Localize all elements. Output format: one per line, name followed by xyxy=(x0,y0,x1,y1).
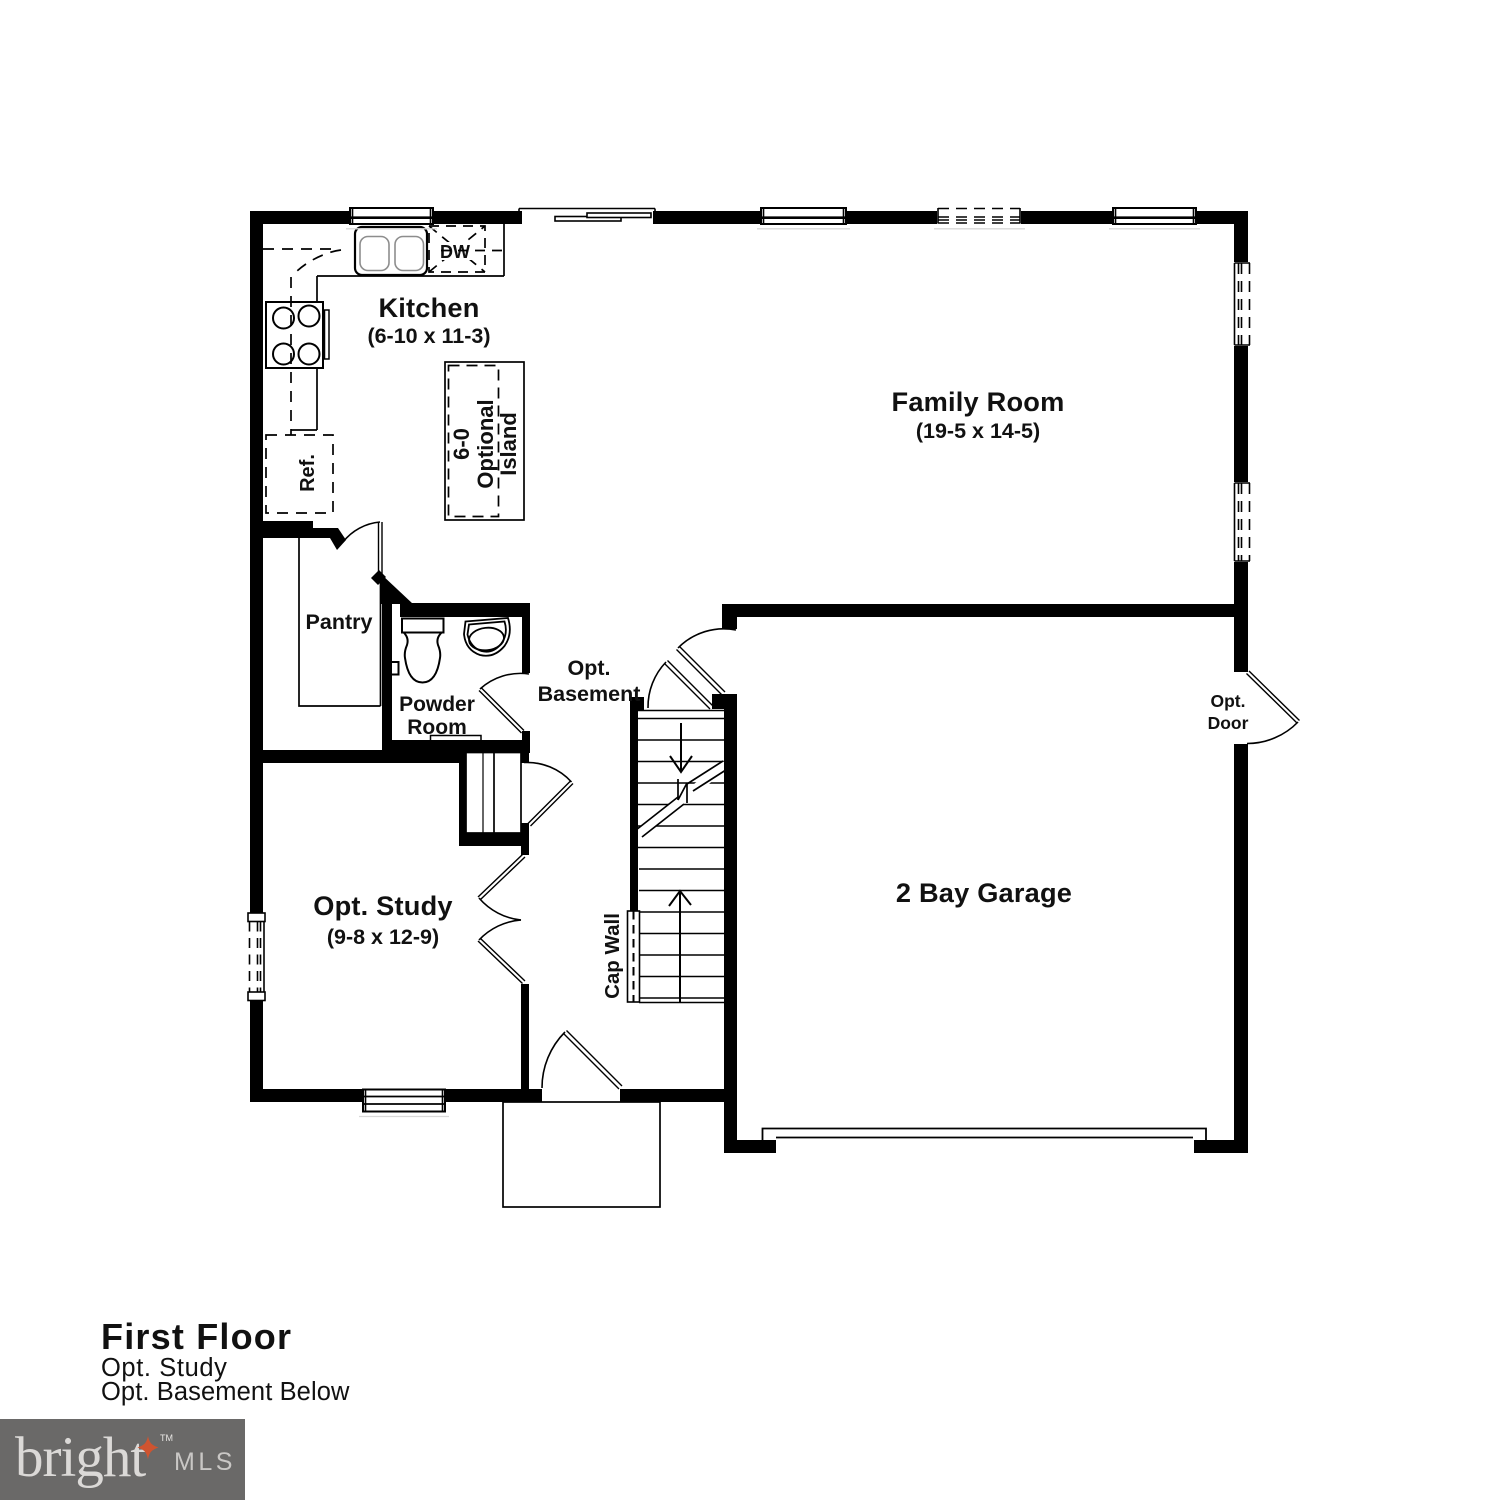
svg-text:DW: DW xyxy=(440,242,470,262)
svg-text:Opt.: Opt. xyxy=(1211,691,1246,711)
svg-text:6-0: 6-0 xyxy=(449,428,474,460)
svg-text:Opt.: Opt. xyxy=(568,656,611,680)
svg-text:Room: Room xyxy=(407,716,467,739)
svg-text:bright: bright xyxy=(15,1426,146,1489)
svg-text:First Floor: First Floor xyxy=(101,1316,292,1357)
svg-text:MLS: MLS xyxy=(174,1448,236,1476)
svg-text:2 Bay Garage: 2 Bay Garage xyxy=(896,877,1072,908)
svg-text:(9-8 x 12-9): (9-8 x 12-9) xyxy=(327,925,439,949)
svg-text:Optional: Optional xyxy=(473,399,498,488)
svg-text:Powder: Powder xyxy=(399,693,475,716)
svg-text:Ref.: Ref. xyxy=(297,454,319,492)
svg-text:Island: Island xyxy=(496,412,521,476)
svg-text:(6-10 x 11-3): (6-10 x 11-3) xyxy=(367,324,490,348)
svg-text:Basement: Basement xyxy=(538,682,641,706)
svg-text:Kitchen: Kitchen xyxy=(378,292,479,323)
svg-text:Cap Wall: Cap Wall xyxy=(601,913,624,999)
svg-text:Pantry: Pantry xyxy=(306,610,373,634)
svg-text:Opt. Basement Below: Opt. Basement Below xyxy=(101,1378,350,1406)
svg-text:TM: TM xyxy=(160,1433,173,1443)
svg-text:Opt. Study: Opt. Study xyxy=(313,890,452,921)
svg-text:Door: Door xyxy=(1208,713,1249,733)
svg-text:Family Room: Family Room xyxy=(892,386,1065,417)
svg-text:(19-5 x 14-5): (19-5 x 14-5) xyxy=(916,419,1040,443)
